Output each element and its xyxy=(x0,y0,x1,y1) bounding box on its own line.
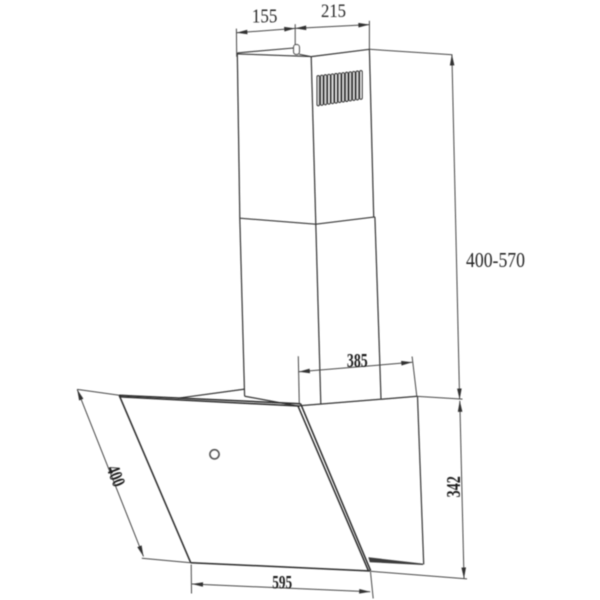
svg-text:215: 215 xyxy=(321,2,346,22)
svg-text:385: 385 xyxy=(347,350,368,372)
svg-text:400-570: 400-570 xyxy=(466,248,525,272)
svg-text:342: 342 xyxy=(443,476,465,497)
svg-text:595: 595 xyxy=(272,573,292,594)
svg-text:155: 155 xyxy=(252,6,278,27)
